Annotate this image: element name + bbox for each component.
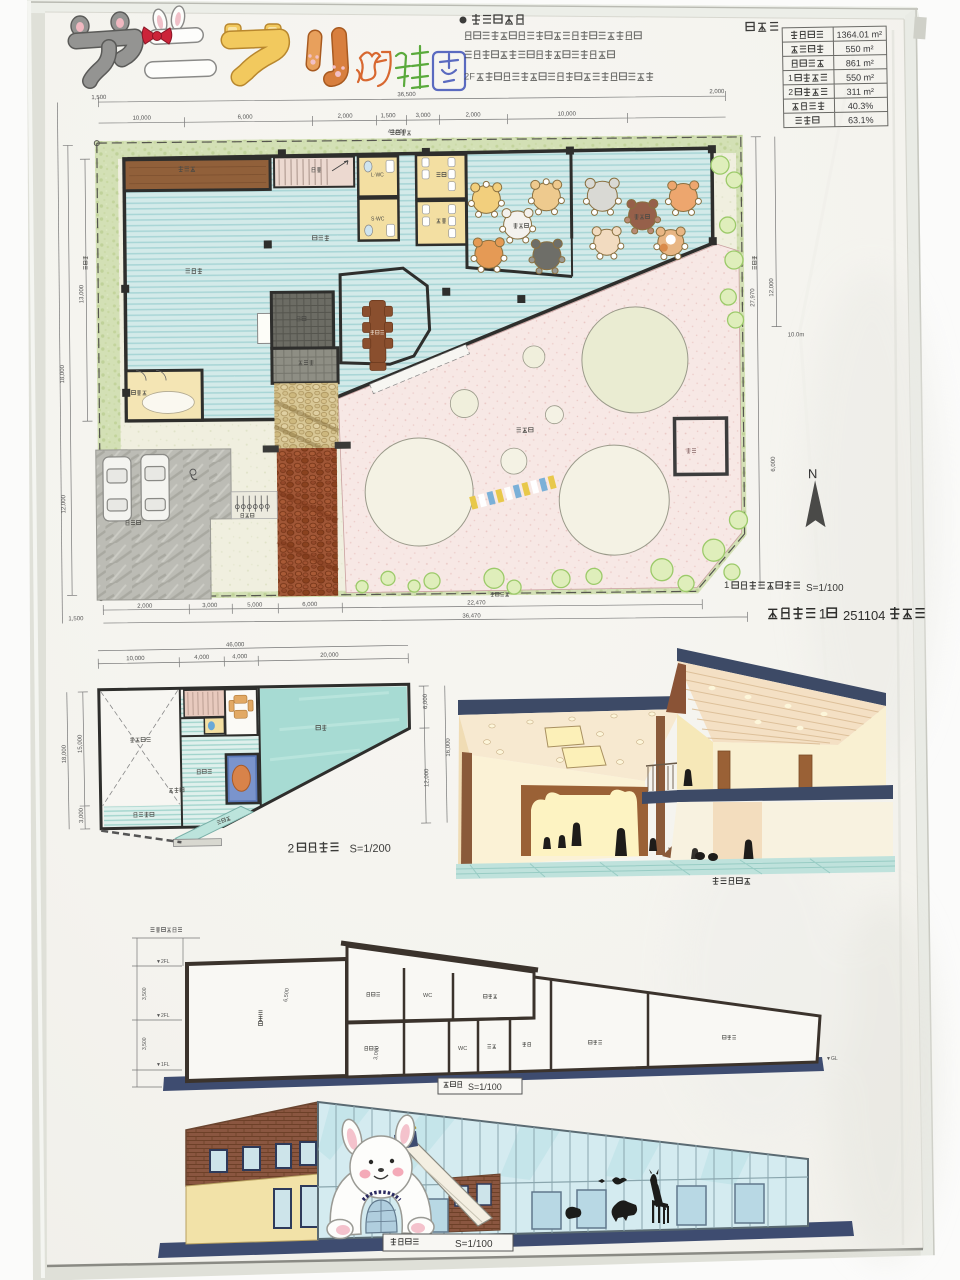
svg-text:12,000: 12,000 (424, 768, 430, 787)
svg-text:550 m²: 550 m² (846, 72, 874, 82)
svg-text:311 m²: 311 m² (847, 87, 875, 97)
svg-text:1,500: 1,500 (381, 113, 397, 119)
svg-text:18,000: 18,000 (60, 364, 66, 383)
svg-text:2,000: 2,000 (466, 112, 482, 118)
svg-text:251104: 251104 (843, 608, 885, 623)
svg-text:3,000: 3,000 (79, 807, 85, 823)
svg-text:36,470: 36,470 (462, 613, 481, 619)
svg-text:15,000: 15,000 (78, 734, 84, 753)
svg-text:3,500: 3,500 (142, 987, 148, 1000)
svg-text:6,000: 6,000 (302, 602, 318, 608)
svg-text:N: N (808, 466, 818, 481)
svg-text:20,000: 20,000 (320, 653, 339, 659)
svg-text:10,000: 10,000 (558, 111, 577, 117)
svg-text:10.0m: 10.0m (788, 332, 805, 338)
svg-text:861 m²: 861 m² (846, 58, 874, 68)
svg-text:3,500: 3,500 (142, 1037, 148, 1050)
svg-text:2: 2 (788, 87, 793, 97)
svg-text:3,000: 3,000 (202, 603, 218, 609)
svg-text:1,500: 1,500 (91, 95, 107, 101)
svg-text:▼GL: ▼GL (826, 1056, 838, 1062)
svg-text:WC: WC (458, 1046, 467, 1052)
svg-text:S=1/100: S=1/100 (468, 1082, 502, 1092)
svg-text:▼2FL: ▼2FL (156, 1013, 170, 1019)
svg-text:6,000: 6,000 (771, 456, 777, 472)
svg-text:2,000: 2,000 (709, 89, 725, 95)
svg-text:12,000: 12,000 (769, 278, 775, 297)
svg-text:WC: WC (423, 993, 432, 999)
svg-text:▼1FL: ▼1FL (156, 1062, 170, 1068)
svg-text:550 m²: 550 m² (845, 44, 873, 54)
svg-text:2,000: 2,000 (137, 604, 153, 610)
svg-text:3,000: 3,000 (416, 113, 432, 119)
svg-text:▼2FL: ▼2FL (156, 959, 170, 965)
svg-text:2F: 2F (464, 72, 475, 82)
svg-text:16,000: 16,000 (446, 738, 452, 757)
svg-text:S=1/200: S=1/200 (349, 843, 391, 856)
svg-text:S·WC: S·WC (371, 217, 385, 223)
svg-text:22,470: 22,470 (467, 600, 486, 606)
svg-text:4,000: 4,000 (232, 654, 248, 660)
svg-text:1: 1 (788, 73, 793, 83)
svg-text:36,500: 36,500 (397, 92, 416, 98)
svg-text:12,000: 12,000 (61, 494, 67, 513)
svg-text:1: 1 (819, 607, 827, 622)
svg-text:63.1%: 63.1% (848, 115, 874, 125)
svg-text:13,000: 13,000 (79, 284, 85, 303)
svg-text:6,000: 6,000 (423, 693, 429, 709)
svg-text:27,970: 27,970 (750, 288, 756, 307)
svg-text:L·WC: L·WC (371, 173, 384, 179)
svg-text:10,000: 10,000 (126, 656, 145, 662)
svg-text:18,000: 18,000 (62, 744, 68, 763)
svg-text:2: 2 (287, 841, 294, 855)
svg-text:1,500: 1,500 (68, 616, 84, 622)
svg-text:5,000: 5,000 (247, 603, 263, 609)
svg-text:40.3%: 40.3% (848, 101, 874, 111)
svg-text:2,000: 2,000 (338, 114, 354, 120)
svg-text:4,000: 4,000 (194, 655, 210, 661)
svg-text:46,000: 46,000 (226, 642, 245, 648)
svg-text:10,000: 10,000 (133, 116, 152, 122)
svg-text:6,000: 6,000 (238, 115, 254, 121)
svg-text:S=1/100: S=1/100 (806, 583, 844, 594)
svg-text:S=1/100: S=1/100 (455, 1239, 493, 1250)
svg-text:1364.01 m²: 1364.01 m² (836, 29, 882, 40)
svg-text:1: 1 (724, 580, 729, 591)
